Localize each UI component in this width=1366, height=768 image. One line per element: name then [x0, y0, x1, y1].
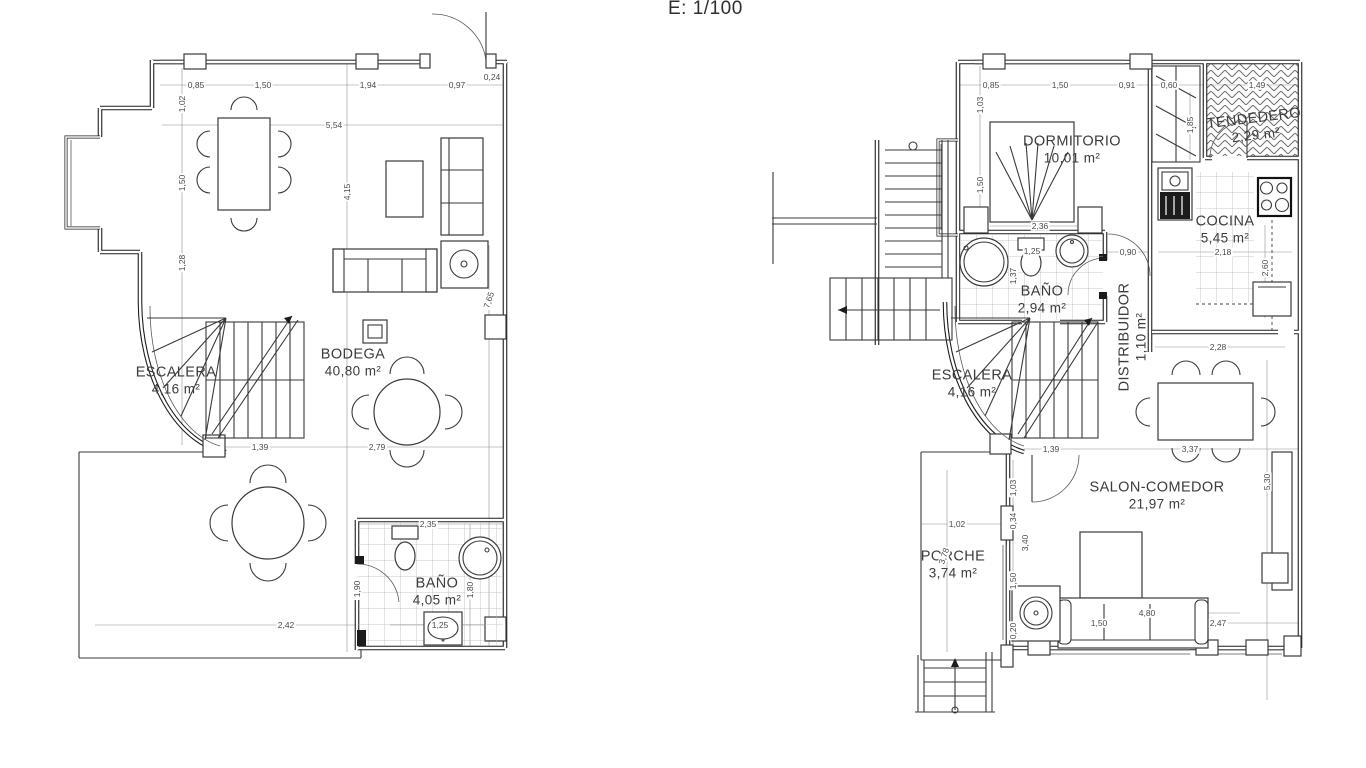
floor-plan-sheet: E: 1/100 BODEGA40,80 m²ESCALERA4,16 m²BA…	[0, 0, 1366, 768]
exterior-stair-bottom	[915, 652, 995, 713]
exterior-stair-left	[772, 140, 952, 340]
tendedero-hatch	[1207, 64, 1298, 156]
left-bathroom	[355, 522, 503, 646]
left-furniture	[197, 97, 488, 581]
right-plan-drawing	[772, 54, 1301, 713]
left-entry-door	[420, 12, 496, 68]
floor-plans-svg	[0, 0, 1366, 768]
upper-bathroom	[960, 234, 1103, 320]
right-spiral-stair	[951, 306, 1098, 446]
kitchen	[1158, 168, 1291, 330]
left-plan-drawing	[66, 12, 507, 658]
left-spiral-stair	[147, 306, 304, 446]
